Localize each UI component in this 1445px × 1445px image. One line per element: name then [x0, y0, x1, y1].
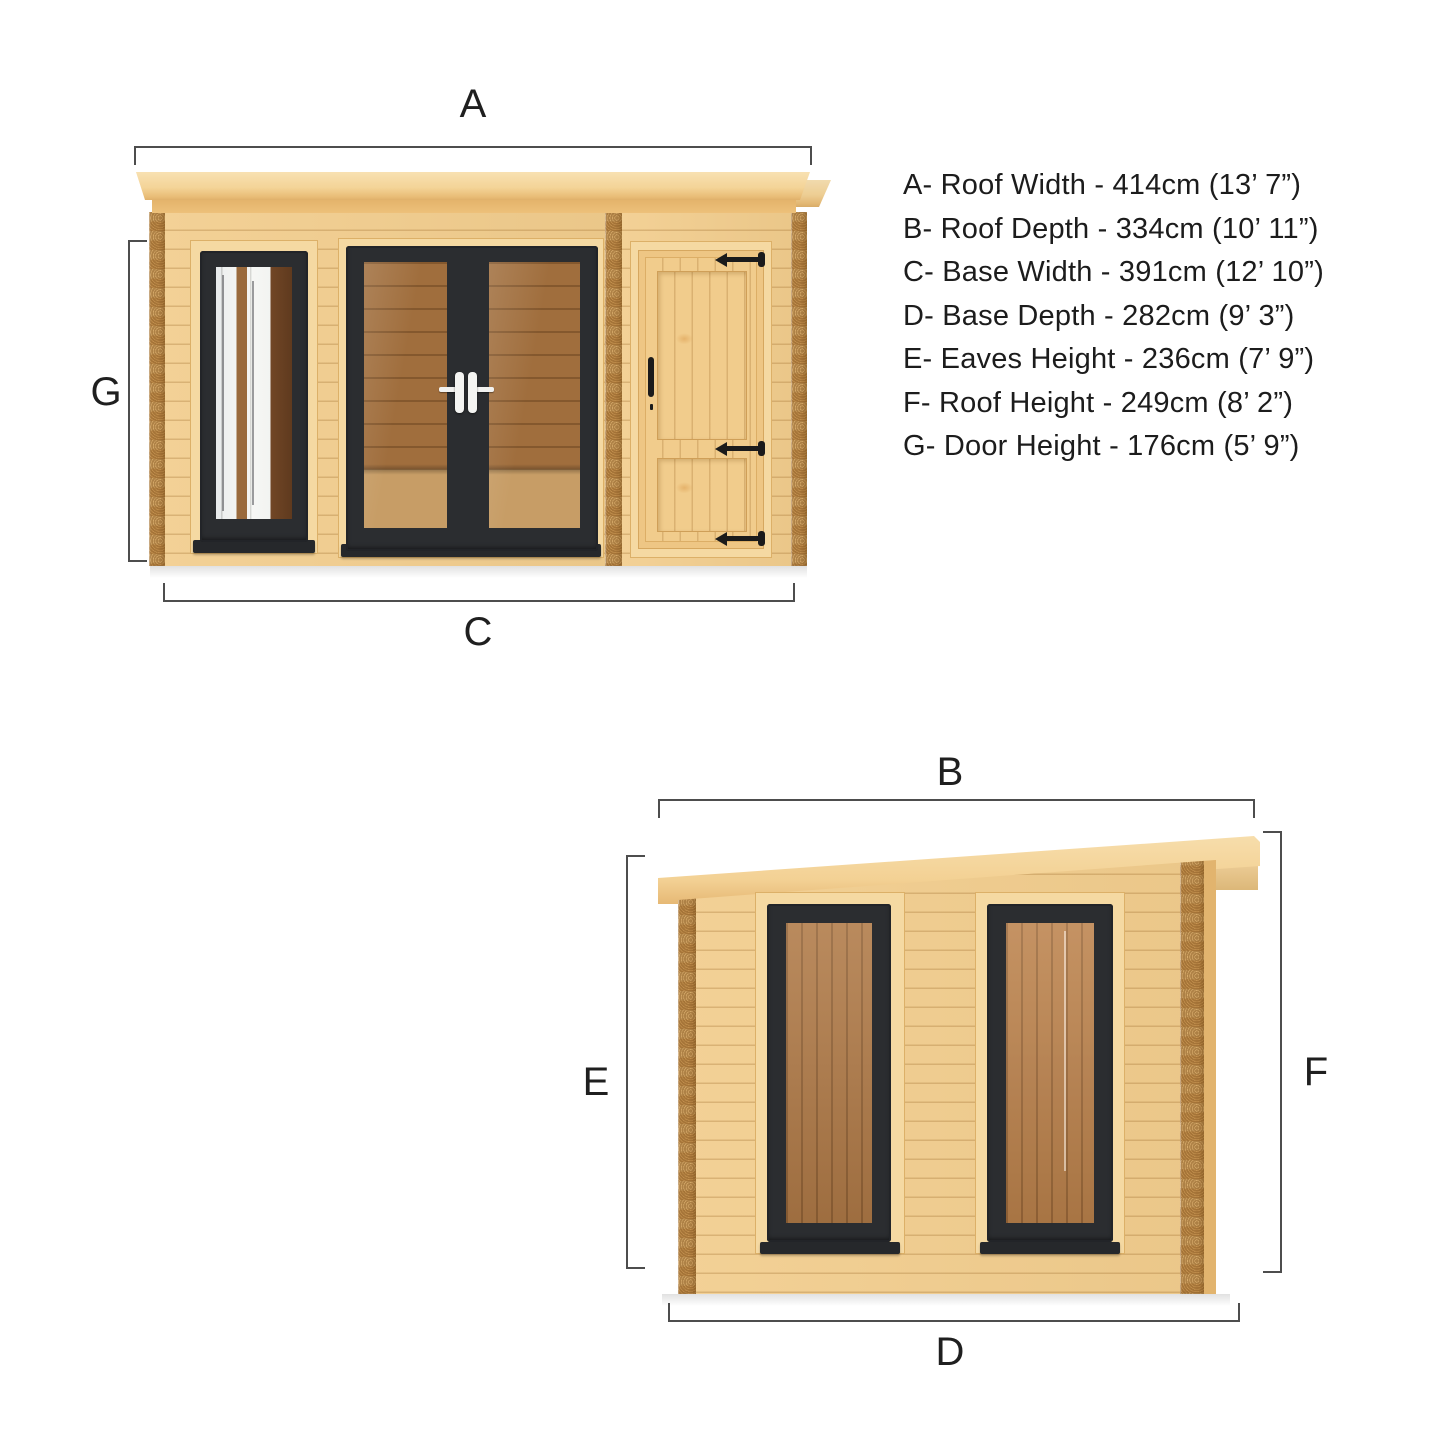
dim-label-roof-depth: B — [930, 752, 970, 792]
dim-label-base-width: C — [458, 612, 498, 652]
door-handle-plate-left — [455, 372, 464, 413]
dim-tick — [626, 1267, 645, 1269]
shed-door-keyhole — [650, 404, 653, 410]
side-ground-shadow — [662, 1294, 1230, 1306]
dim-tick — [1263, 831, 1282, 833]
dim-line-roof-width — [134, 146, 812, 148]
main-roof-fascia — [136, 172, 810, 200]
shed-door-panel-top — [657, 271, 747, 440]
door-handle-plate-right — [468, 372, 477, 413]
dim-label-base-depth: D — [930, 1332, 970, 1372]
dim-label-roof-width: A — [453, 84, 493, 124]
dim-tick — [810, 146, 812, 165]
dim-line-roof-depth — [658, 799, 1255, 801]
dim-tick — [134, 146, 136, 165]
side-right-edge-board — [1204, 856, 1216, 1294]
dim-line-base-width — [163, 600, 795, 602]
dim-line-roof-height — [1280, 831, 1282, 1273]
front-window-glass-open-sash — [216, 267, 292, 519]
key-row-roof-height: F- Roof Height - 249cm (8’ 2”) — [903, 382, 1423, 426]
key-row-base-depth: D- Base Depth - 282cm (9’ 3”) — [903, 295, 1423, 339]
front-door-right-glass — [489, 262, 580, 528]
key-row-roof-width: A- Roof Width - 414cm (13’ 7”) — [903, 164, 1423, 208]
dim-line-base-depth — [668, 1320, 1240, 1322]
door-handle-lever-right — [476, 387, 494, 392]
front-ground-shadow — [150, 566, 807, 578]
dim-tick — [793, 583, 795, 602]
shed-door-leaf — [645, 257, 757, 542]
key-row-eaves-height: E- Eaves Height - 236cm (7’ 9”) — [903, 338, 1423, 382]
shed-door-handle — [648, 357, 654, 397]
dim-tick — [163, 583, 165, 602]
front-right-corner-logs — [791, 212, 807, 566]
front-junction-corner-logs — [605, 212, 622, 566]
dim-tick — [128, 240, 147, 242]
key-row-roof-depth: B- Roof Depth - 334cm (10’ 11”) — [903, 208, 1423, 252]
side-window1-sill — [760, 1242, 900, 1254]
dim-tick — [1238, 1303, 1240, 1322]
key-row-door-height: G- Door Height - 176cm (5’ 9”) — [903, 425, 1423, 469]
side-right-corner-logs — [1180, 856, 1204, 1294]
side-window2-sill — [980, 1242, 1120, 1254]
dim-tick — [626, 855, 645, 857]
front-door-left-glass — [364, 262, 447, 528]
side-window2-reflection — [1064, 931, 1066, 1171]
dimension-key: A- Roof Width - 414cm (13’ 7”) B- Roof D… — [903, 164, 1423, 469]
dim-line-door-height — [128, 240, 130, 562]
dim-tick — [668, 1303, 670, 1322]
dim-label-door-height: G — [86, 372, 126, 412]
key-row-base-width: C- Base Width - 391cm (12’ 10”) — [903, 251, 1423, 295]
dim-tick — [1263, 1271, 1282, 1273]
shed-door-panel-bottom — [657, 458, 747, 532]
front-left-corner-logs — [149, 212, 165, 566]
dim-tick — [128, 560, 147, 562]
product-dimension-diagram: A — [0, 0, 1445, 1445]
side-left-corner-logs — [678, 896, 696, 1294]
dim-tick — [1253, 799, 1255, 818]
dim-tick — [658, 799, 660, 818]
dim-line-eaves-height — [626, 855, 628, 1269]
dim-label-roof-height: F — [1296, 1052, 1336, 1092]
side-window1-glass — [786, 923, 872, 1223]
dim-label-eaves-height: E — [576, 1062, 616, 1102]
roof-underside — [152, 199, 796, 213]
side-window2-glass — [1006, 923, 1094, 1223]
